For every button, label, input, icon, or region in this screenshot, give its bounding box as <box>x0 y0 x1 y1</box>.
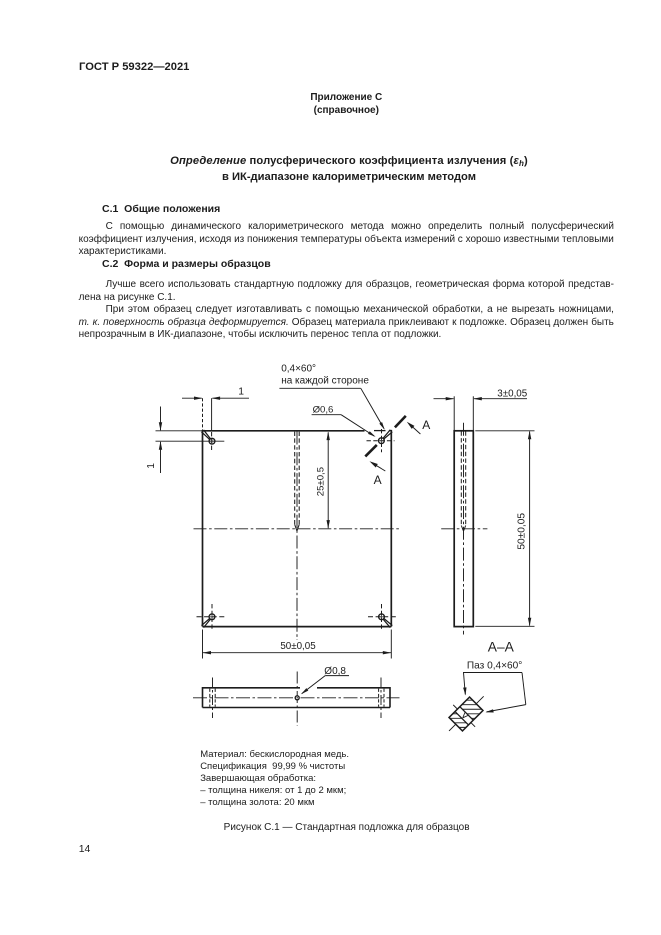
svg-text:1: 1 <box>238 386 244 397</box>
svg-text:на каждой стороне: на каждой стороне <box>281 375 369 386</box>
svg-text:3±0,05: 3±0,05 <box>497 388 527 399</box>
svg-text:0,4×60°: 0,4×60° <box>281 364 316 375</box>
svg-text:А: А <box>422 418 430 432</box>
svg-text:Ø0,6: Ø0,6 <box>313 405 334 416</box>
svg-text:А–А: А–А <box>488 639 515 654</box>
svg-text:25±0,5: 25±0,5 <box>315 467 326 496</box>
svg-text:Паз 0,4×60°: Паз 0,4×60° <box>467 660 522 671</box>
svg-text:1: 1 <box>146 463 157 469</box>
svg-text:А: А <box>374 473 382 487</box>
svg-text:50±0,05: 50±0,05 <box>517 513 528 550</box>
svg-text:50±0,05: 50±0,05 <box>280 641 316 652</box>
